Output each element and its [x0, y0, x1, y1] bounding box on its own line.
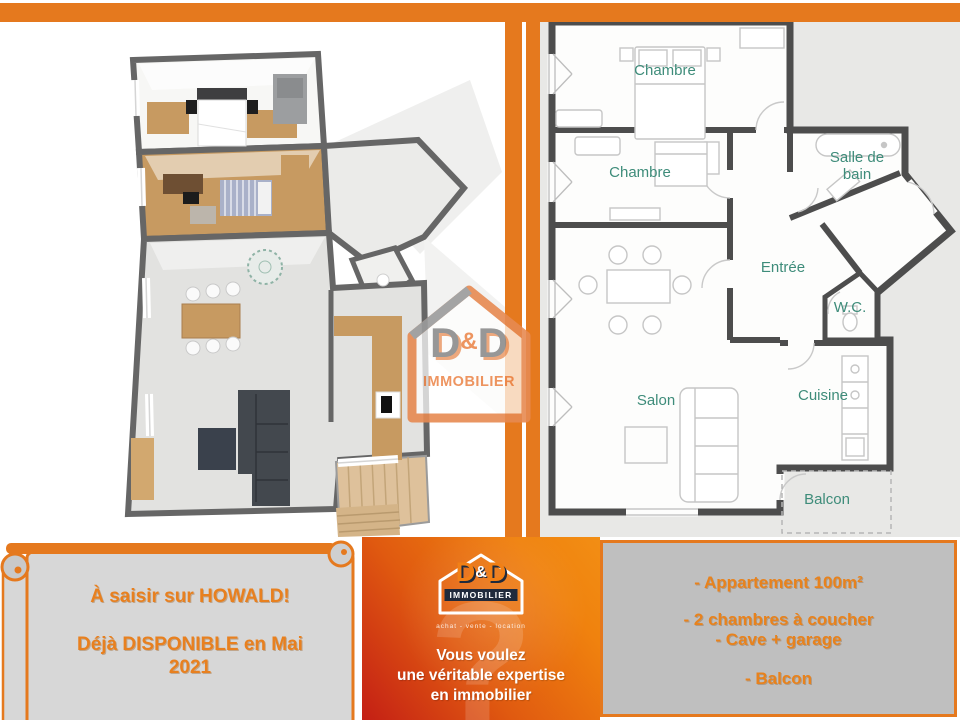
- desk-wood: [147, 102, 189, 134]
- watermark-sub: IMMOBILIER: [400, 374, 538, 390]
- hall-cabinet: [281, 155, 309, 179]
- pillow: [258, 182, 271, 214]
- logo-amp: &: [475, 564, 487, 581]
- detail-cave-garage: - Cave + garage: [603, 630, 954, 650]
- detail-balcony: - Balcon: [603, 669, 954, 689]
- watermark-brand: D&D: [400, 322, 538, 364]
- banner-line1: À saisir sur HOWALD!: [30, 585, 350, 608]
- banner-line3: 2021: [30, 656, 350, 679]
- chair-dark: [183, 192, 199, 204]
- watermark-d2: D: [478, 319, 508, 366]
- logo-d1: D: [456, 557, 476, 587]
- nightstand: [247, 100, 258, 114]
- toilet-3d: [377, 274, 389, 286]
- floor-plan-2d-panel: Chambre Chambre Salle de bain Entrée W.C…: [540, 22, 960, 537]
- pitch-line2: une véritable expertise: [362, 666, 600, 686]
- rug-dark: [198, 428, 236, 470]
- agency-pitch: Vous voulez une véritable expertise en i…: [362, 646, 600, 705]
- bed-3d: [198, 100, 246, 146]
- dining-table-3d: [182, 304, 240, 338]
- logo-brand: D&D: [426, 559, 536, 586]
- sideboard: [131, 438, 154, 500]
- detail-surface: - Appartement 100m²: [603, 573, 954, 593]
- top-orange-bar: [0, 3, 960, 22]
- property-details-box: - Appartement 100m² - 2 chambres à couch…: [600, 540, 957, 717]
- oven: [381, 396, 392, 413]
- round-rug: [248, 250, 282, 284]
- label-salon: Salon: [637, 392, 675, 409]
- logo-sub: IMMOBILIER: [445, 589, 518, 601]
- kitchen-counter: [334, 316, 402, 336]
- label-salle-de-bain-1: Salle de: [830, 149, 884, 166]
- label-cuisine: Cuisine: [798, 387, 848, 404]
- watermark-d1: D: [430, 319, 460, 366]
- label-chambre-top: Chambre: [634, 62, 696, 79]
- pitch-line1: Vous voulez: [362, 646, 600, 666]
- label-salle-de-bain-2: bain: [843, 166, 871, 183]
- logo-tagline: achat - vente - location: [362, 623, 600, 630]
- watermark-logo: D&D IMMOBILIER: [400, 278, 538, 428]
- listing-poster: D&D IMMOBILIER: [0, 0, 960, 720]
- banner-text: À saisir sur HOWALD! Déjà DISPONIBLE en …: [30, 585, 350, 679]
- watermark-amp: &: [460, 328, 477, 355]
- pitch-line3: en immobilier: [362, 686, 600, 706]
- banner-line2: Déjà DISPONIBLE en Mai: [30, 633, 350, 656]
- headboard: [197, 88, 247, 100]
- label-balcon: Balcon: [804, 491, 850, 508]
- label-chambre-mid: Chambre: [609, 164, 671, 181]
- label-entree: Entrée: [761, 259, 805, 276]
- agency-logo: D&D IMMOBILIER: [426, 547, 536, 621]
- agency-card: ? D&D IMMOBILIER achat - vente - locatio…: [362, 537, 600, 720]
- logo-d2: D: [487, 557, 507, 587]
- availability-banner: À saisir sur HOWALD! Déjà DISPONIBLE en …: [0, 537, 364, 720]
- agency-content: D&D IMMOBILIER achat - vente - location …: [362, 537, 600, 720]
- detail-bedrooms: - 2 chambres à coucher: [603, 610, 954, 630]
- rug-small: [190, 206, 216, 224]
- nightstand: [186, 100, 197, 114]
- wardrobe-door: [277, 78, 303, 98]
- label-wc: W.C.: [834, 299, 867, 316]
- floor-plan-2d: Chambre Chambre Salle de bain Entrée W.C…: [540, 22, 960, 537]
- desk-dark: [163, 174, 203, 194]
